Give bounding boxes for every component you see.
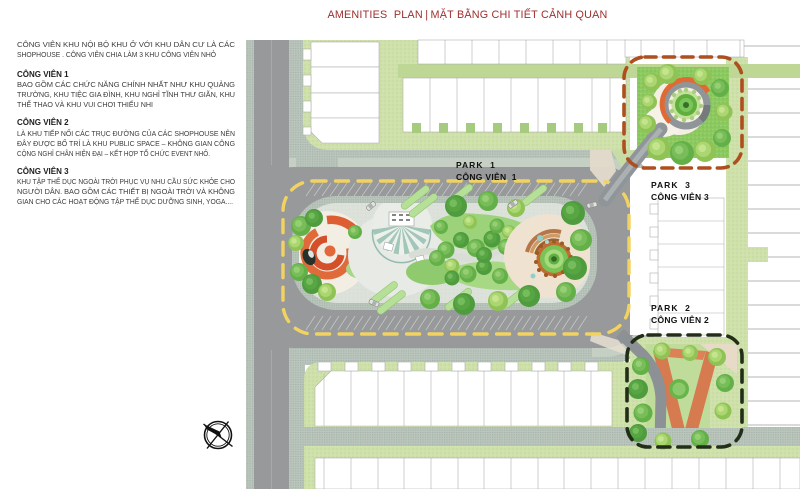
svg-text:CÔNG VIÊN 3: CÔNG VIÊN 3 — [651, 191, 709, 202]
svg-text:CÔNG VIÊN KHU NỘI BỘ KHU Ở VỚ: CÔNG VIÊN KHU NỘI BỘ KHU Ở VỚI KHU DÂN C… — [17, 40, 236, 49]
svg-text:THỂ THAO VÀ KHU VUI CHƠI THIẾU: THỂ THAO VÀ KHU VUI CHƠI THIẾU NHI — [17, 99, 153, 109]
svg-text:GIAN CHO CÁC HOẠT ĐỘNG TẬP THỂ: GIAN CHO CÁC HOẠT ĐỘNG TẬP THỂ DỤC DƯỠNG… — [17, 197, 233, 206]
svg-text:NGƯỜI DÂN. BAO GỒM CÁC THIẾT B: NGƯỜI DÂN. BAO GỒM CÁC THIẾT BỊ NGOÀI TR… — [17, 186, 235, 196]
svg-text:CÔNG VIÊN 1: CÔNG VIÊN 1 — [456, 171, 517, 182]
svg-text:KHU TẬP THỂ DỤC NGOÀI TRỜI PHỤ: KHU TẬP THỂ DỤC NGOÀI TRỜI PHỤC VỤ NHU C… — [17, 176, 235, 186]
svg-text:LÀ KHU TIẾP NỐI CÁC TRỤC ĐƯỜNG: LÀ KHU TIẾP NỐI CÁC TRỤC ĐƯỜNG CỦA CÁC S… — [17, 128, 235, 138]
svg-text:PARK 3: PARK 3 — [651, 180, 691, 190]
svg-text:CÔNG VIÊN 3: CÔNG VIÊN 3 — [17, 167, 69, 176]
svg-text:TRƯỜNG, KHU TIỆC GIA ĐÌNH, KHU: TRƯỜNG, KHU TIỆC GIA ĐÌNH, KHU NGHỈ TĨNH… — [17, 90, 235, 99]
svg-text:PARK 2: PARK 2 — [651, 303, 691, 313]
svg-text:ĐÂY ĐƯỢC BỐ TRÍ LÀ KHU PUBLIC: ĐÂY ĐƯỢC BỐ TRÍ LÀ KHU PUBLIC SPACE – KH… — [17, 138, 235, 148]
svg-text:BAO GỒM CÁC CHỨC NĂNG CHÍNH NH: BAO GỒM CÁC CHỨC NĂNG CHÍNH NHẤT NHƯ KHU… — [17, 79, 235, 89]
svg-text:CỘNG NGHỈ CHÂN HIỆN ĐẠI – KẾT: CỘNG NGHỈ CHÂN HIỆN ĐẠI – KẾT HỢP TỔ CHỨ… — [17, 148, 210, 158]
svg-text:PARK 1: PARK 1 — [456, 160, 496, 170]
svg-text:CÔNG VIÊN 2: CÔNG VIÊN 2 — [651, 314, 709, 325]
svg-text:CÔNG VIÊN 2: CÔNG VIÊN 2 — [17, 118, 69, 127]
svg-text:SHOPHOUSE . CÔNG VIÊN CHIA LÀM: SHOPHOUSE . CÔNG VIÊN CHIA LÀM 3 KHU CÔN… — [17, 50, 216, 59]
svg-text:CÔNG VIÊN 1: CÔNG VIÊN 1 — [17, 70, 69, 79]
